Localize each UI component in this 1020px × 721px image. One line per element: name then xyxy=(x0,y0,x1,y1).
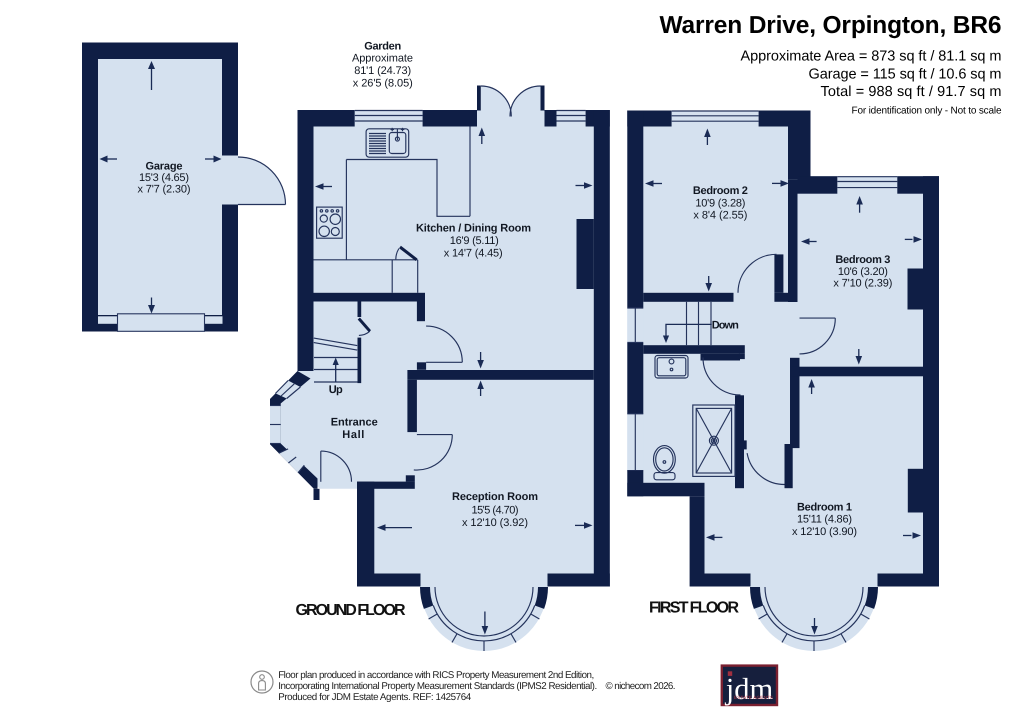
svg-text:15'11 (4.86): 15'11 (4.86) xyxy=(797,514,852,526)
svg-text:jdm: jdm xyxy=(725,672,774,706)
svg-text:10'6 (3.20): 10'6 (3.20) xyxy=(838,266,888,278)
svg-text:x 14'7 (4.45): x 14'7 (4.45) xyxy=(444,247,503,259)
svg-text:15'3 (4.65): 15'3 (4.65) xyxy=(139,172,189,184)
svg-text:For identification only - Not: For identification only - Not to scale xyxy=(852,106,1002,117)
svg-text:Approximate: Approximate xyxy=(352,53,413,65)
svg-text:ESTATE AGENTS: ESTATE AGENTS xyxy=(734,695,773,700)
svg-text:FIRST FLOOR: FIRST FLOOR xyxy=(649,600,739,617)
svg-text:Bedroom 1: Bedroom 1 xyxy=(797,501,852,513)
svg-text:x 12'10 (3.92): x 12'10 (3.92) xyxy=(462,517,528,529)
svg-text:x 8'4 (2.55): x 8'4 (2.55) xyxy=(693,210,747,222)
svg-text:Entrance: Entrance xyxy=(331,417,378,429)
svg-text:Approximate Area = 873 sq ft /: Approximate Area = 873 sq ft / 81.1 sq m xyxy=(741,49,1002,65)
svg-text:Kitchen / Dining Room: Kitchen / Dining Room xyxy=(416,222,531,234)
svg-text:Hall: Hall xyxy=(342,429,364,441)
svg-text:Bedroom 3: Bedroom 3 xyxy=(835,254,890,266)
svg-text:Warren Drive, Orpington, BR6: Warren Drive, Orpington, BR6 xyxy=(660,12,1002,39)
svg-text:15'5 (4.70): 15'5 (4.70) xyxy=(472,505,519,517)
svg-text:Total = 988 sq ft / 91.7 sq m: Total = 988 sq ft / 91.7 sq m xyxy=(821,84,1002,100)
svg-text:x 7'7 (2.30): x 7'7 (2.30) xyxy=(138,184,191,196)
svg-text:Garage = 115 sq ft / 10.6 sq m: Garage = 115 sq ft / 10.6 sq m xyxy=(809,66,1002,82)
svg-text:x 12'10 (3.90): x 12'10 (3.90) xyxy=(792,526,857,538)
svg-text:x 7'10 (2.39): x 7'10 (2.39) xyxy=(833,278,892,290)
svg-text:16'9 (5.11): 16'9 (5.11) xyxy=(450,235,499,247)
svg-text:Incorporating International Pr: Incorporating International Property Mea… xyxy=(278,681,597,692)
svg-text:81'1 (24.73): 81'1 (24.73) xyxy=(354,65,411,77)
svg-text:Produced for JDM Estate Agents: Produced for JDM Estate Agents. REF: 142… xyxy=(278,692,472,703)
svg-text:Garden: Garden xyxy=(364,41,401,53)
svg-text:Floor plan produced in accorda: Floor plan produced in accordance with R… xyxy=(278,670,594,681)
svg-text:Up: Up xyxy=(329,384,343,396)
svg-text:Reception Room: Reception Room xyxy=(452,491,538,503)
svg-text:Down: Down xyxy=(712,320,739,332)
svg-text:Garage: Garage xyxy=(146,161,183,173)
svg-text:x 26'5 (8.05): x 26'5 (8.05) xyxy=(353,77,413,89)
svg-text:Bedroom 2: Bedroom 2 xyxy=(693,185,748,197)
svg-text:10'9 (3.28): 10'9 (3.28) xyxy=(695,197,745,209)
svg-text:© nichecom 2026.: © nichecom 2026. xyxy=(606,681,676,692)
svg-text:GROUND FLOOR: GROUND FLOOR xyxy=(296,602,406,619)
